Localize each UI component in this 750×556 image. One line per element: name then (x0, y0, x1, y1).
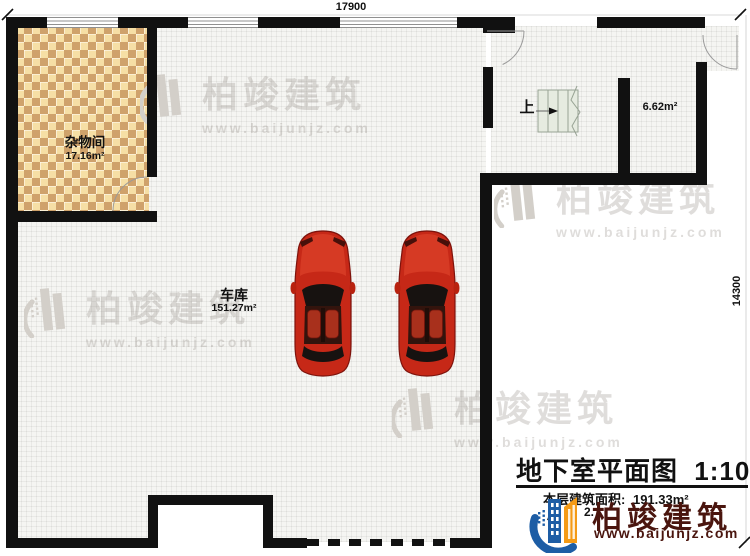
dim-tick (739, 537, 750, 548)
wall-bottom-c (450, 538, 492, 548)
window (188, 17, 258, 28)
room-area-storage: 17.16m² (40, 151, 130, 163)
room-area-small-room: 6.62m² (630, 101, 690, 113)
stair-up-label: 上 (518, 100, 536, 117)
storage-room-floor (16, 26, 149, 213)
wall-stairhall-bottom (480, 173, 707, 185)
title-underline (516, 485, 748, 488)
car-top-view (394, 228, 460, 378)
wall-pier (483, 17, 515, 33)
drawing-title-row: 地下室平面图 1:100 (516, 451, 750, 488)
wall-storage-right (147, 27, 157, 177)
dim-tick (735, 9, 746, 20)
window (340, 17, 457, 28)
wall-left-exterior (6, 17, 18, 548)
wall-right-wing (696, 62, 707, 185)
room-label-storage: 杂物间 (40, 136, 130, 151)
wall-storage-bottom (6, 211, 157, 222)
window (47, 17, 118, 28)
wall-notch-right (263, 495, 273, 548)
car-top-view (290, 228, 356, 378)
basement-floor-plan: 柏竣建筑 www.baijunjz.com 柏竣建筑 www.baijunjz.… (0, 0, 750, 556)
brand-logo-icon (527, 491, 591, 553)
wall-garage-right (480, 173, 492, 548)
dimension-right: 14300 (731, 261, 743, 321)
dimension-top: 17900 (331, 1, 371, 13)
wall-small-room-left (618, 78, 630, 173)
wall-notch-top (148, 495, 273, 505)
wall-bottom-a (6, 538, 148, 548)
wall-segment (258, 17, 340, 28)
drawing-title: 地下室平面图 (516, 456, 678, 486)
wall-bottom-b (273, 538, 307, 548)
wall-stairhall-left (483, 67, 493, 128)
wall-segment (597, 17, 705, 28)
garage-door-dashed-opening (307, 539, 450, 546)
watermark-url: www.baijunjz.com (556, 224, 725, 240)
room-area-garage: 151.27m² (189, 303, 279, 315)
brand-url: www.baijunjz.com (594, 525, 739, 541)
bottom-notch-outside (158, 505, 263, 548)
drawing-scale: 1:100 (694, 456, 750, 486)
